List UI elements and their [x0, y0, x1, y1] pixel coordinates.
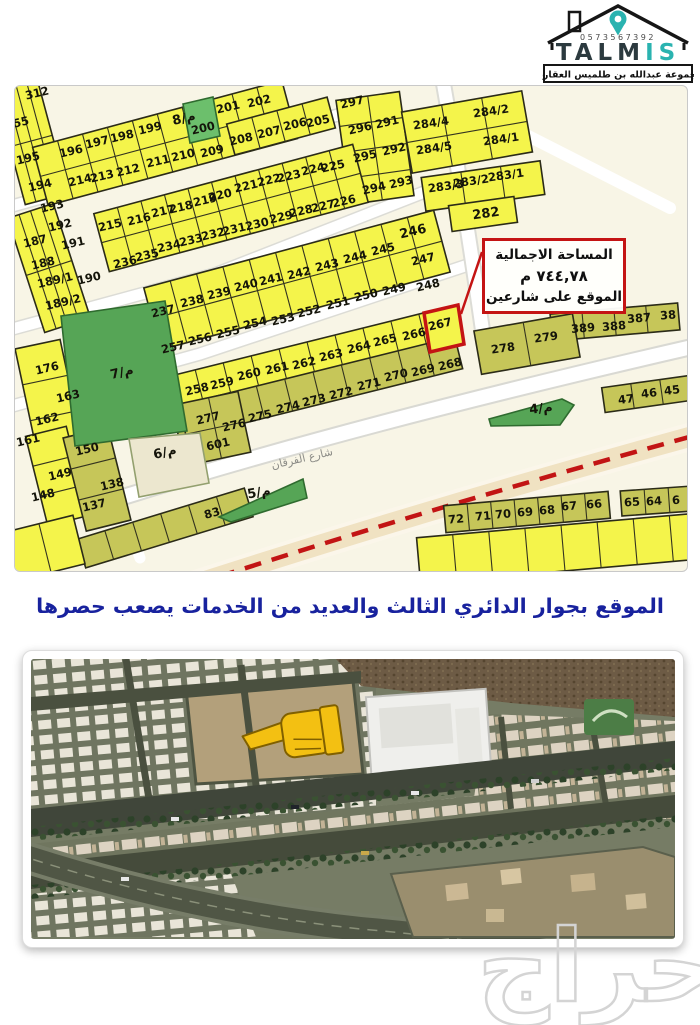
plot-label: 202: [246, 91, 273, 110]
satellite-photo: [31, 659, 675, 939]
plot-label: 163: [55, 386, 82, 405]
plot-label: 221: [233, 176, 260, 195]
plot-label: 83: [202, 504, 221, 522]
plot-label: 138: [99, 474, 126, 493]
satellite-photo-frame: [22, 650, 684, 948]
area-annotation-box: المساحة الاجمالية ٧٤٤,٧٨ م الموقع على شا…: [482, 238, 626, 314]
plot-label: 264: [346, 337, 373, 356]
plot-label: 297: [339, 92, 366, 111]
plot-label: 195: [15, 148, 42, 167]
plot-label: 267: [427, 314, 454, 333]
real-estate-flyer: { "logo": { "phone": "0573567392", "bran…: [0, 0, 700, 1011]
plot-label: 250: [353, 285, 380, 304]
plot-label: 38: [659, 307, 676, 322]
plot-label: 262: [291, 353, 318, 372]
plot-label: 275: [247, 406, 274, 425]
plot-label: 312: [24, 85, 51, 103]
plot-label: 229: [268, 207, 295, 226]
logo-subtitle: مجموعة عبدالله بن طلميس العقارية: [542, 70, 694, 81]
plot-label: 210: [170, 145, 197, 164]
plot-label: 263: [318, 345, 345, 364]
plot-label: 215: [97, 215, 124, 234]
plot-label: 601: [205, 434, 232, 453]
plot-label: 235: [134, 245, 161, 264]
plot-label: 45: [663, 382, 681, 398]
plot-label: 283/1: [487, 166, 525, 185]
plot-label: 241: [258, 269, 285, 288]
plot-label: 137: [81, 495, 108, 514]
plot-label: 211: [145, 151, 172, 170]
annotation-line2: ٧٤٤,٧٨ م: [485, 265, 623, 288]
plot-label: 65: [624, 494, 641, 509]
plot-label: 148: [30, 485, 57, 504]
plot-label: 240: [233, 275, 260, 294]
plot-label: 212: [115, 160, 142, 179]
plot-label: 249: [381, 279, 408, 298]
plot-label: 270: [383, 365, 410, 384]
plot-number-layer: 312551951961971981998/م20020120220921021…: [15, 86, 687, 571]
plot-label: 292: [381, 139, 408, 158]
plot-label: 189/1: [36, 269, 74, 291]
plot-label: 237: [150, 301, 177, 320]
plot-label: 284/5: [415, 139, 453, 158]
plot-label: 255: [215, 322, 242, 341]
plot-label: 193: [39, 196, 66, 215]
plot-label: 46: [640, 385, 658, 401]
plot-label: 272: [328, 383, 355, 402]
plot-label: 279: [533, 328, 559, 345]
plot-label: 268: [437, 354, 464, 373]
location-pin-icon: [610, 11, 627, 36]
plot-label: 244: [342, 247, 369, 266]
plot-label: 256: [187, 329, 214, 348]
plot-label: 223: [276, 166, 303, 185]
plot-label: 387: [626, 310, 651, 326]
plot-label: 284/4: [412, 114, 450, 133]
plot-label: 283/2: [452, 172, 490, 191]
plot-label: 205: [305, 111, 332, 130]
plot-label: 72: [447, 511, 464, 526]
plot-label: 242: [286, 263, 313, 282]
plot-label: 251: [325, 293, 352, 312]
plot-label: 277: [195, 408, 222, 427]
plot-label: 218: [168, 197, 195, 216]
plot-label: 234: [156, 236, 183, 255]
plot-label: 259: [209, 373, 236, 392]
caption-text: الموقع بجوار الدائري الثالث والعديد من ا…: [0, 586, 700, 626]
plot-label: 284/1: [482, 130, 520, 149]
plot-label: 273: [301, 390, 328, 409]
plot-label: 64: [646, 493, 663, 508]
plot-label: 225: [320, 156, 347, 175]
plot-label: 388: [601, 318, 626, 334]
plot-label: 248: [415, 275, 442, 294]
plot-label: 192: [47, 215, 74, 234]
parcel-map: 312551951961971981998/م20020120220921021…: [14, 85, 688, 572]
plot-label: 220: [207, 185, 234, 204]
plot-label: 265: [372, 330, 399, 349]
plot-label: 266: [401, 324, 428, 343]
plot-label: 258: [184, 379, 211, 398]
plot-label: 260: [236, 364, 263, 383]
plot-label: 188: [30, 253, 57, 272]
plot-label: 278: [490, 339, 516, 356]
plot-label: 150: [74, 439, 101, 458]
plot-label: 254: [242, 313, 269, 332]
plot-label: 6: [672, 493, 681, 508]
talmis-logo: 0573567392 TALMIS مجموعة عبدالله بن طلمي…: [542, 2, 694, 84]
plot-label: 161: [15, 430, 42, 449]
park-label: 4/م: [529, 400, 554, 417]
plot-label: 214: [67, 170, 94, 189]
plot-label: 269: [410, 360, 437, 379]
plot-label: 70: [494, 506, 511, 521]
plot-label: 55: [14, 113, 30, 130]
plot-label: 243: [314, 255, 341, 274]
plot-label: 189/2: [44, 291, 82, 313]
plot-label: 261: [264, 358, 291, 377]
plot-label: 239: [206, 283, 233, 302]
plot-label: 67: [560, 498, 577, 513]
plot-label: 257: [160, 337, 187, 356]
park-label: 6/م: [152, 443, 178, 463]
park-label: 5/م: [246, 484, 272, 503]
plot-label: 236: [112, 252, 139, 271]
plot-label: 69: [516, 504, 533, 519]
plot-label: 238: [179, 291, 206, 310]
plot-label: 291: [374, 112, 401, 131]
plot-label: 71: [474, 508, 491, 523]
plot-label: 47: [617, 391, 635, 407]
plot-label: 187: [22, 231, 49, 250]
plot-label: 208: [228, 129, 255, 148]
annotation-line1: المساحة الاجمالية: [485, 245, 623, 265]
plot-label: 209: [199, 141, 226, 160]
plot-label: 284/2: [472, 102, 510, 121]
small-park: [584, 699, 634, 735]
plot-label: 196: [58, 141, 85, 160]
plot-label: 230: [244, 214, 271, 233]
plot-label: 295: [352, 146, 379, 165]
plot-label: 252: [296, 301, 323, 320]
plot-label: 296: [347, 118, 374, 137]
plot-label: 253: [270, 309, 297, 328]
annotation-line3: الموقع على شارعين: [485, 287, 623, 307]
plot-label: 190: [76, 268, 103, 287]
logo-brand: TALMIS: [556, 40, 680, 66]
plot-label: 68: [538, 502, 555, 517]
plot-label: 274: [275, 397, 302, 416]
plot-label: 389: [570, 320, 595, 336]
plot-label: 191: [60, 233, 87, 252]
plot-label: 66: [585, 496, 602, 511]
plot-label: 194: [27, 175, 54, 194]
plot-label: 216: [126, 209, 153, 228]
plot-label: 162: [34, 409, 61, 428]
plot-label: 282: [472, 205, 501, 224]
plot-label: 271: [356, 374, 383, 393]
plot-label: 245: [370, 239, 397, 258]
plot-label: 276: [221, 415, 248, 434]
plot-label: 207: [256, 122, 283, 141]
plot-label: 294: [361, 178, 388, 197]
park-label: 7/م: [109, 363, 135, 383]
plot-label: 246: [398, 222, 428, 243]
plot-label: 199: [137, 118, 164, 137]
plot-label: 201: [215, 97, 242, 116]
plot-label: 197: [84, 132, 111, 151]
plot-label: 293: [388, 172, 415, 191]
plot-label: 198: [109, 126, 136, 145]
plot-label: 149: [47, 464, 74, 483]
plot-label: 247: [410, 249, 437, 268]
plot-label: 176: [34, 358, 61, 377]
